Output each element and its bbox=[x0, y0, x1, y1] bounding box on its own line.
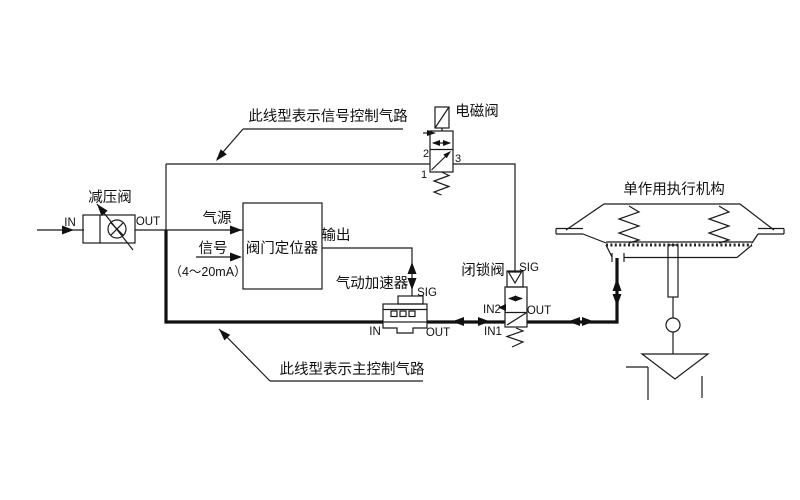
reducing-valve-symbol bbox=[83, 201, 135, 250]
reducing-valve-out-label: OUT bbox=[136, 216, 160, 228]
solenoid-port3-label: 3 bbox=[455, 153, 461, 165]
pneumatic-control-diagram: 减压阀 IN OUT 阀门定位器 气源 信号 （4～20mA） 输出 气动加速器… bbox=[0, 0, 800, 500]
positioner-label: 阀门定位器 bbox=[246, 240, 319, 257]
solenoid-valve-label: 电磁阀 bbox=[455, 103, 499, 120]
lockup-in1-label: IN1 bbox=[484, 326, 502, 338]
spring-icon bbox=[434, 172, 449, 195]
spring-icon bbox=[709, 206, 729, 243]
solenoid-port2-label: 2 bbox=[423, 148, 429, 160]
lockup-in2-label: IN2 bbox=[483, 304, 501, 316]
booster-sig-label: SIG bbox=[417, 287, 437, 299]
signal-range-label: （4～20mA） bbox=[169, 265, 246, 279]
signal-line-note-callout bbox=[213, 129, 403, 164]
valve-plug-icon bbox=[642, 354, 708, 379]
signal-line-note: 此线型表示信号控制气路 bbox=[248, 108, 408, 125]
lockup-out-label: OUT bbox=[527, 305, 551, 317]
air-source-label: 气源 bbox=[203, 210, 232, 227]
actuator-stem bbox=[668, 245, 678, 297]
lockup-valve-label: 闭锁阀 bbox=[461, 262, 505, 279]
positioner-output-label: 输出 bbox=[322, 227, 351, 244]
actuator-label: 单作用执行机构 bbox=[623, 181, 725, 198]
booster-in-label: IN bbox=[369, 326, 381, 338]
spring-icon bbox=[507, 328, 523, 347]
diagram-canvas: 减压阀 IN OUT 阀门定位器 气源 信号 （4～20mA） 输出 气动加速器… bbox=[0, 0, 800, 500]
main-line-note: 此线型表示主控制气路 bbox=[280, 361, 425, 378]
reducing-valve-in-label: IN bbox=[64, 217, 76, 229]
reducing-valve-label: 减压阀 bbox=[88, 189, 132, 206]
actuator-symbol bbox=[556, 204, 784, 400]
solenoid-port1-label: 1 bbox=[421, 169, 427, 181]
booster-symbol bbox=[383, 296, 427, 333]
booster-label: 气动加速器 bbox=[336, 275, 409, 292]
signal-label: 信号 bbox=[199, 240, 228, 257]
spring-icon bbox=[619, 206, 639, 243]
booster-out-label: OUT bbox=[426, 327, 450, 339]
lockup-sig-label: SIG bbox=[519, 262, 539, 274]
lockup-valve-symbol bbox=[498, 271, 527, 347]
